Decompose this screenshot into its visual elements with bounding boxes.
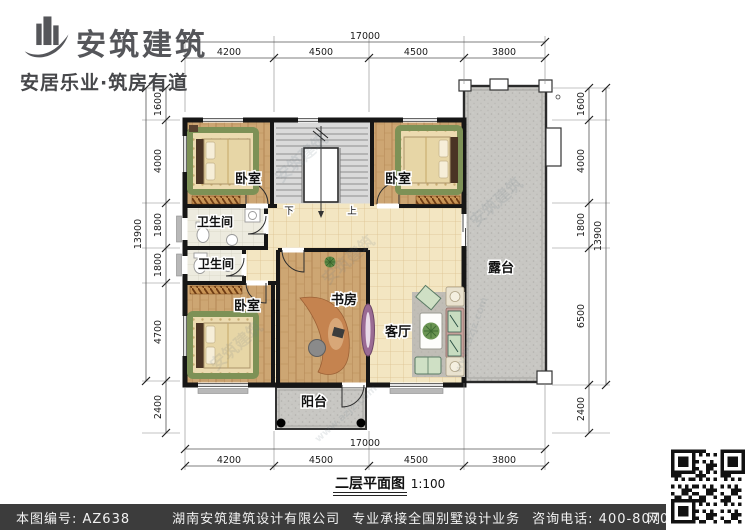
dim-bottom-seg: 4500 bbox=[404, 455, 428, 466]
bed-top-right bbox=[398, 128, 460, 204]
plan-scale: 1:100 bbox=[411, 477, 446, 491]
label-bedroom-bottom-left: 卧室 bbox=[234, 298, 260, 314]
label-balcony: 阳台 bbox=[301, 394, 327, 410]
dim-right-seg: 2400 bbox=[576, 397, 587, 421]
label-bathroom-lower: 卫生间 bbox=[198, 256, 234, 271]
dim-left-seg: 1800 bbox=[153, 253, 164, 277]
dim-top-seg: 3800 bbox=[492, 47, 516, 58]
label-bedroom-top-left: 卧室 bbox=[235, 171, 261, 187]
dim-right-seg: 6500 bbox=[576, 304, 587, 328]
dim-right-seg: 1800 bbox=[576, 213, 587, 237]
building-logo-icon bbox=[20, 12, 74, 62]
dim-left-seg: 2400 bbox=[153, 395, 164, 419]
footer-bar: 本图编号: AZ638 湖南安筑建筑设计有限公司 专业承接全国别墅设计业务 咨询… bbox=[0, 504, 750, 530]
dim-bottom-seg: 4200 bbox=[217, 455, 241, 466]
footer-company: 湖南安筑建筑设计有限公司 bbox=[172, 508, 340, 527]
label-bathroom-upper: 卫生间 bbox=[197, 214, 233, 229]
bed-top-left bbox=[189, 125, 256, 204]
company-logo: 安筑建筑 安居乐业·筑房有道 bbox=[20, 12, 240, 95]
dim-left-seg: 4700 bbox=[153, 320, 164, 344]
footer-service: 专业承接全国别墅设计业务 bbox=[352, 508, 520, 527]
dim-left-total: 13900 bbox=[133, 219, 144, 249]
qr-code bbox=[666, 443, 750, 530]
plan-number: 本图编号: AZ638 bbox=[16, 508, 130, 527]
dim-right-seg: 1600 bbox=[576, 92, 587, 116]
dim-right-total: 13900 bbox=[593, 221, 604, 251]
label-living-room: 客厅 bbox=[385, 324, 411, 340]
brand-tagline: 安居乐业·筑房有道 bbox=[20, 68, 240, 95]
dim-top-seg: 4500 bbox=[309, 47, 333, 58]
dim-top-total: 17000 bbox=[350, 31, 380, 42]
label-terrace: 露台 bbox=[488, 260, 514, 276]
label-stairs-down: 下 bbox=[284, 206, 294, 217]
dim-left-seg: 4000 bbox=[153, 149, 164, 173]
plan-title: 二层平面图 bbox=[335, 476, 405, 492]
dim-top-seg: 4500 bbox=[404, 47, 428, 58]
dim-bottom-seg: 4500 bbox=[309, 455, 333, 466]
decor-cabinet-top bbox=[366, 312, 371, 348]
dim-left-seg: 1600 bbox=[153, 92, 164, 116]
plan-title-block: 二层平面图 1:100 bbox=[333, 476, 445, 496]
label-bedroom-top-right: 卧室 bbox=[385, 171, 411, 187]
dim-right-seg: 4000 bbox=[576, 149, 587, 173]
label-study: 书房 bbox=[331, 292, 357, 308]
qr-code-grid bbox=[671, 448, 745, 525]
dim-bottom-seg: 3800 bbox=[492, 455, 516, 466]
footer-web: 网 bbox=[647, 508, 660, 527]
label-stairs-up: 上 bbox=[347, 206, 357, 217]
title-underline bbox=[333, 493, 407, 496]
dim-bottom-total: 17000 bbox=[350, 438, 380, 449]
brand-name: 安筑建筑 bbox=[76, 29, 208, 62]
dim-left-seg: 1800 bbox=[153, 213, 164, 237]
